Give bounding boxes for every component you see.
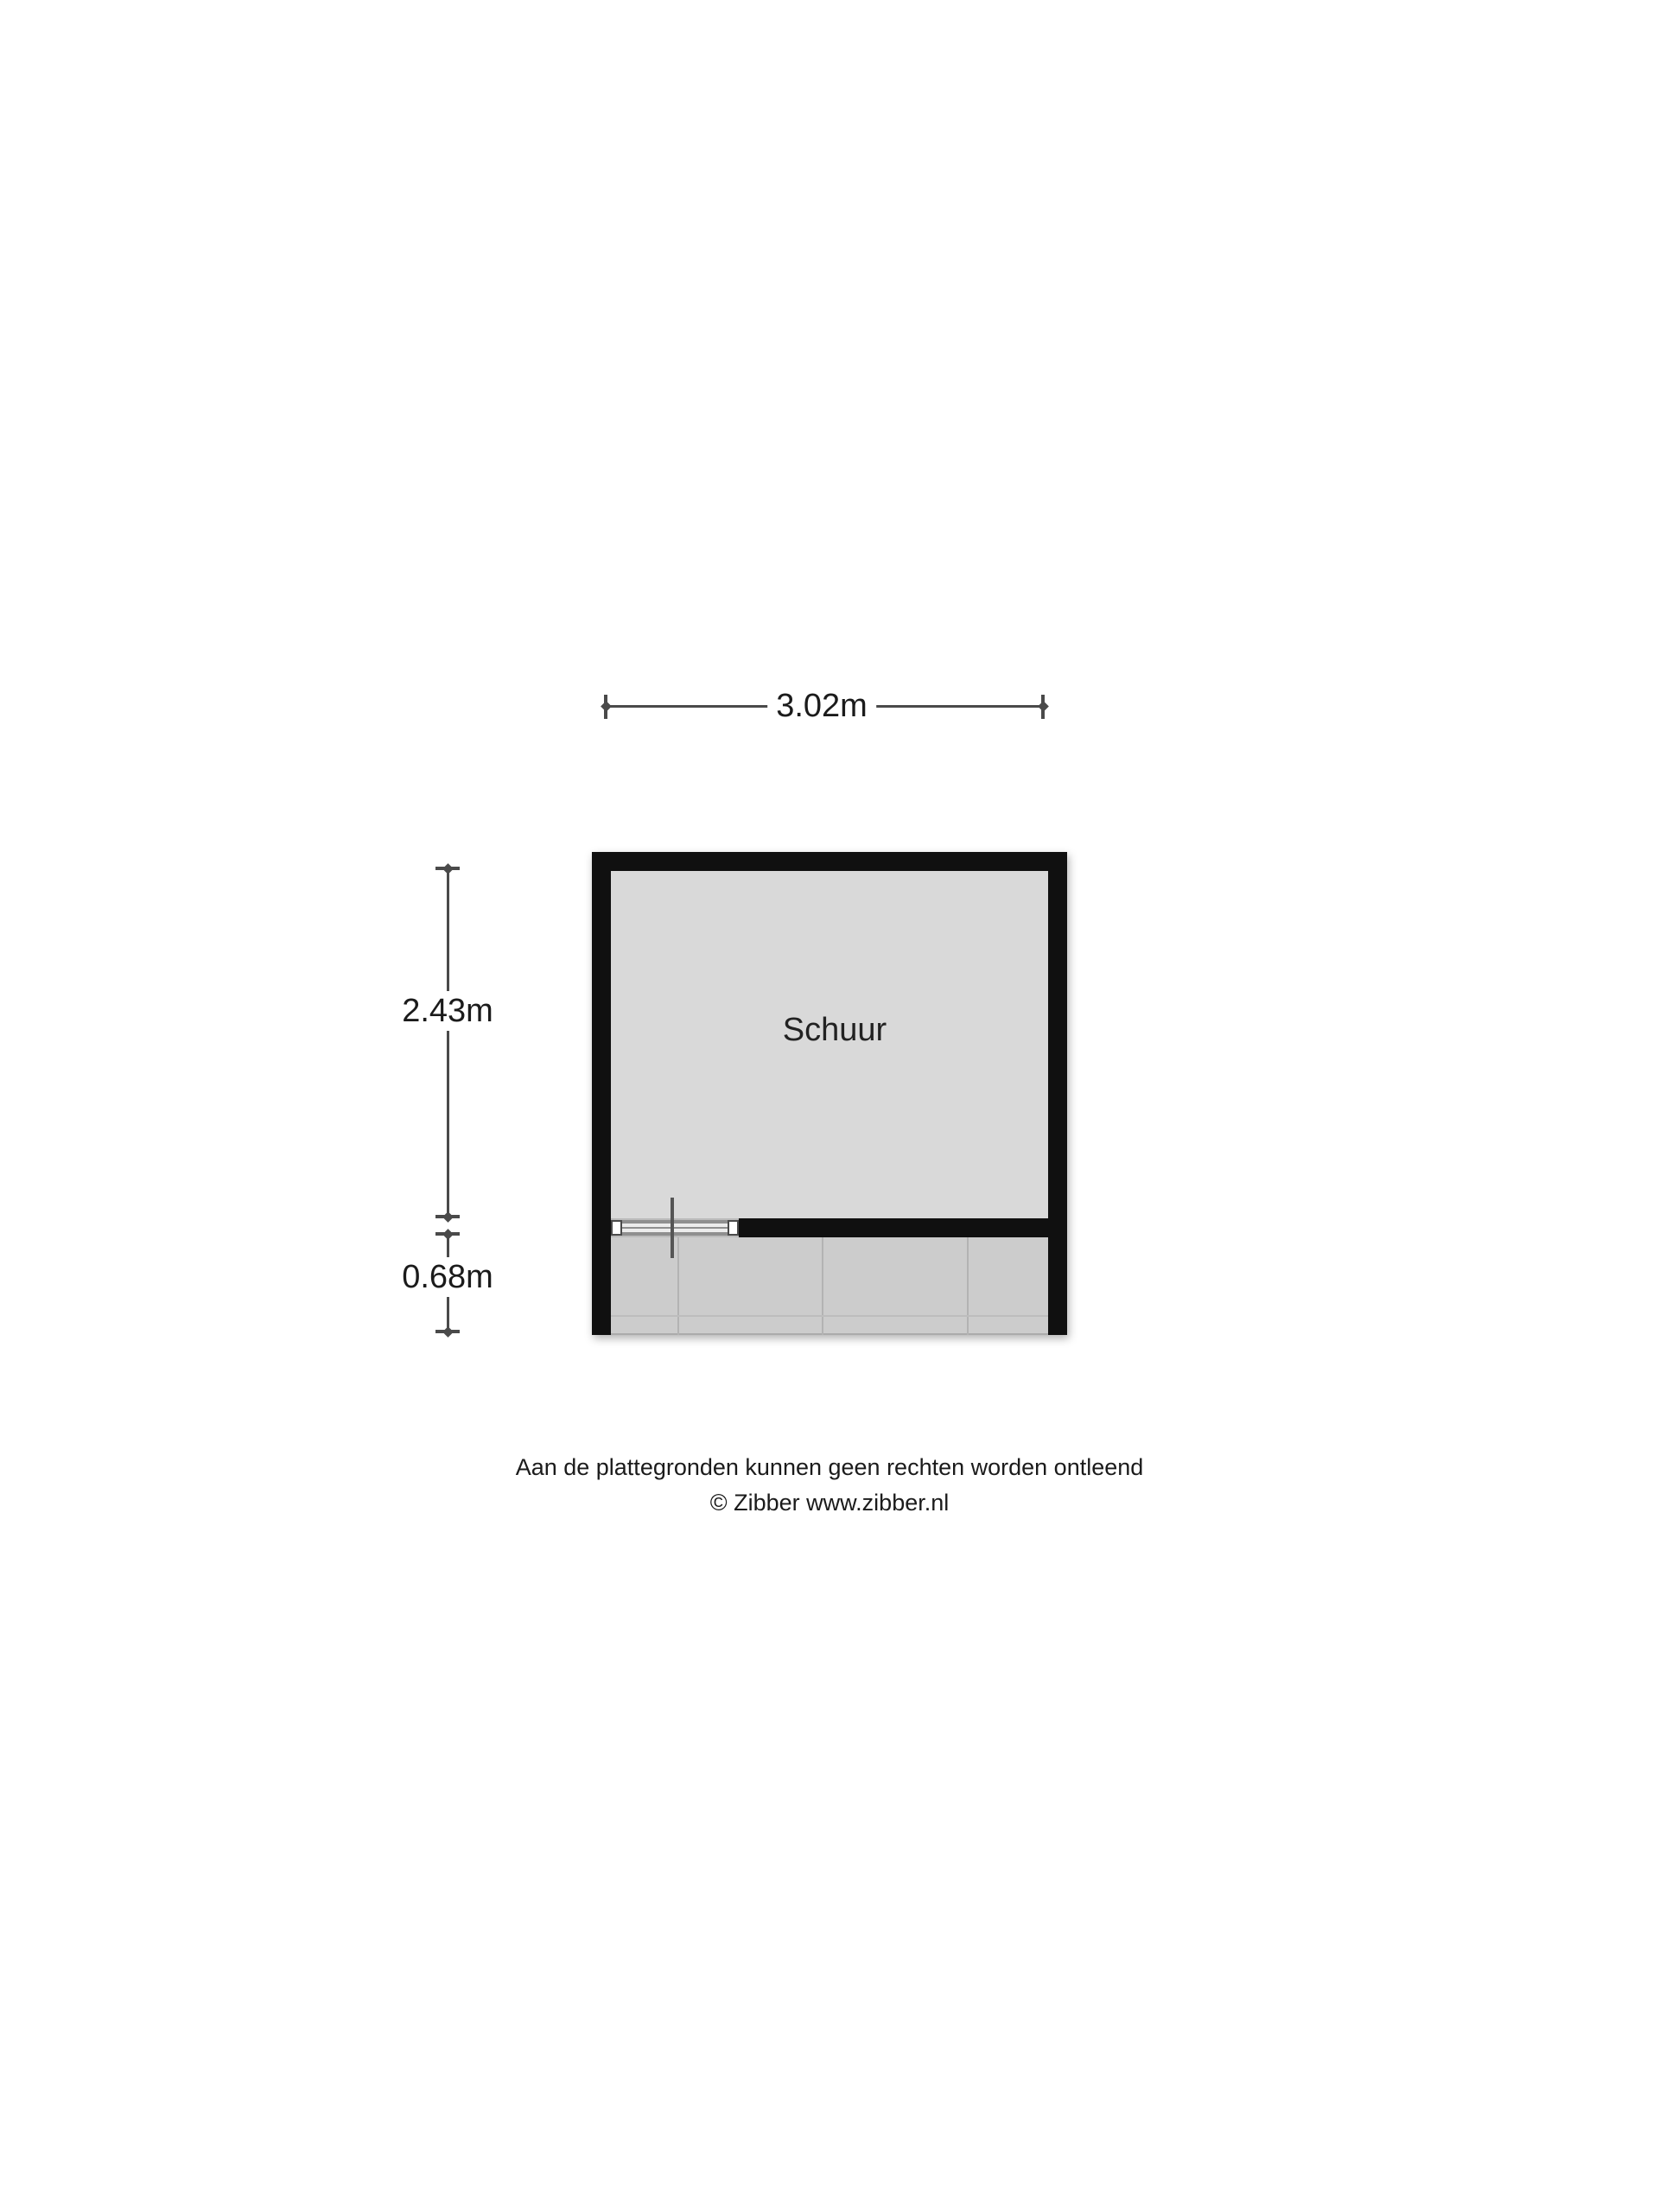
copyright-line: © Zibber www.zibber.nl [0, 1485, 1659, 1521]
window-end-cap-right [728, 1220, 739, 1236]
porch-divider-line [822, 1237, 823, 1335]
porch-dimension-arrow-top [442, 1229, 454, 1240]
building-outline: Schuur [592, 852, 1067, 1335]
height-dimension-line [447, 868, 449, 1218]
room-label: Schuur [783, 1013, 887, 1047]
wall-top [592, 852, 1067, 871]
window-center-line [621, 1227, 728, 1229]
width-dimension-arrow-right [1038, 701, 1049, 712]
porch-area [611, 1237, 1048, 1335]
floorplan-canvas: 3.02m 2.43m 0.68m [0, 0, 1659, 2212]
height-dimension-label: 2.43m [393, 991, 502, 1031]
width-dimension-label: 3.02m [767, 686, 876, 726]
width-dimension-arrow-left [601, 701, 612, 712]
wall-opening-marker [671, 1198, 674, 1258]
porch-step-line [611, 1315, 1048, 1317]
footer-disclaimer: Aan de plattegronden kunnen geen rechten… [0, 1450, 1659, 1521]
height-dimension-arrow-bottom [442, 1211, 454, 1223]
wall-inner-bottom [739, 1218, 1048, 1237]
height-dimension-arrow-top [442, 863, 454, 874]
window-symbol [611, 1220, 739, 1236]
porch-dimension-label: 0.68m [393, 1257, 502, 1297]
wall-right [1048, 852, 1067, 1335]
porch-divider-line [677, 1237, 679, 1335]
window-end-cap-left [611, 1220, 622, 1236]
wall-left [592, 852, 611, 1335]
porch-dimension-arrow-bottom [442, 1326, 454, 1338]
disclaimer-line: Aan de plattegronden kunnen geen rechten… [0, 1450, 1659, 1485]
porch-divider-line [967, 1237, 969, 1335]
